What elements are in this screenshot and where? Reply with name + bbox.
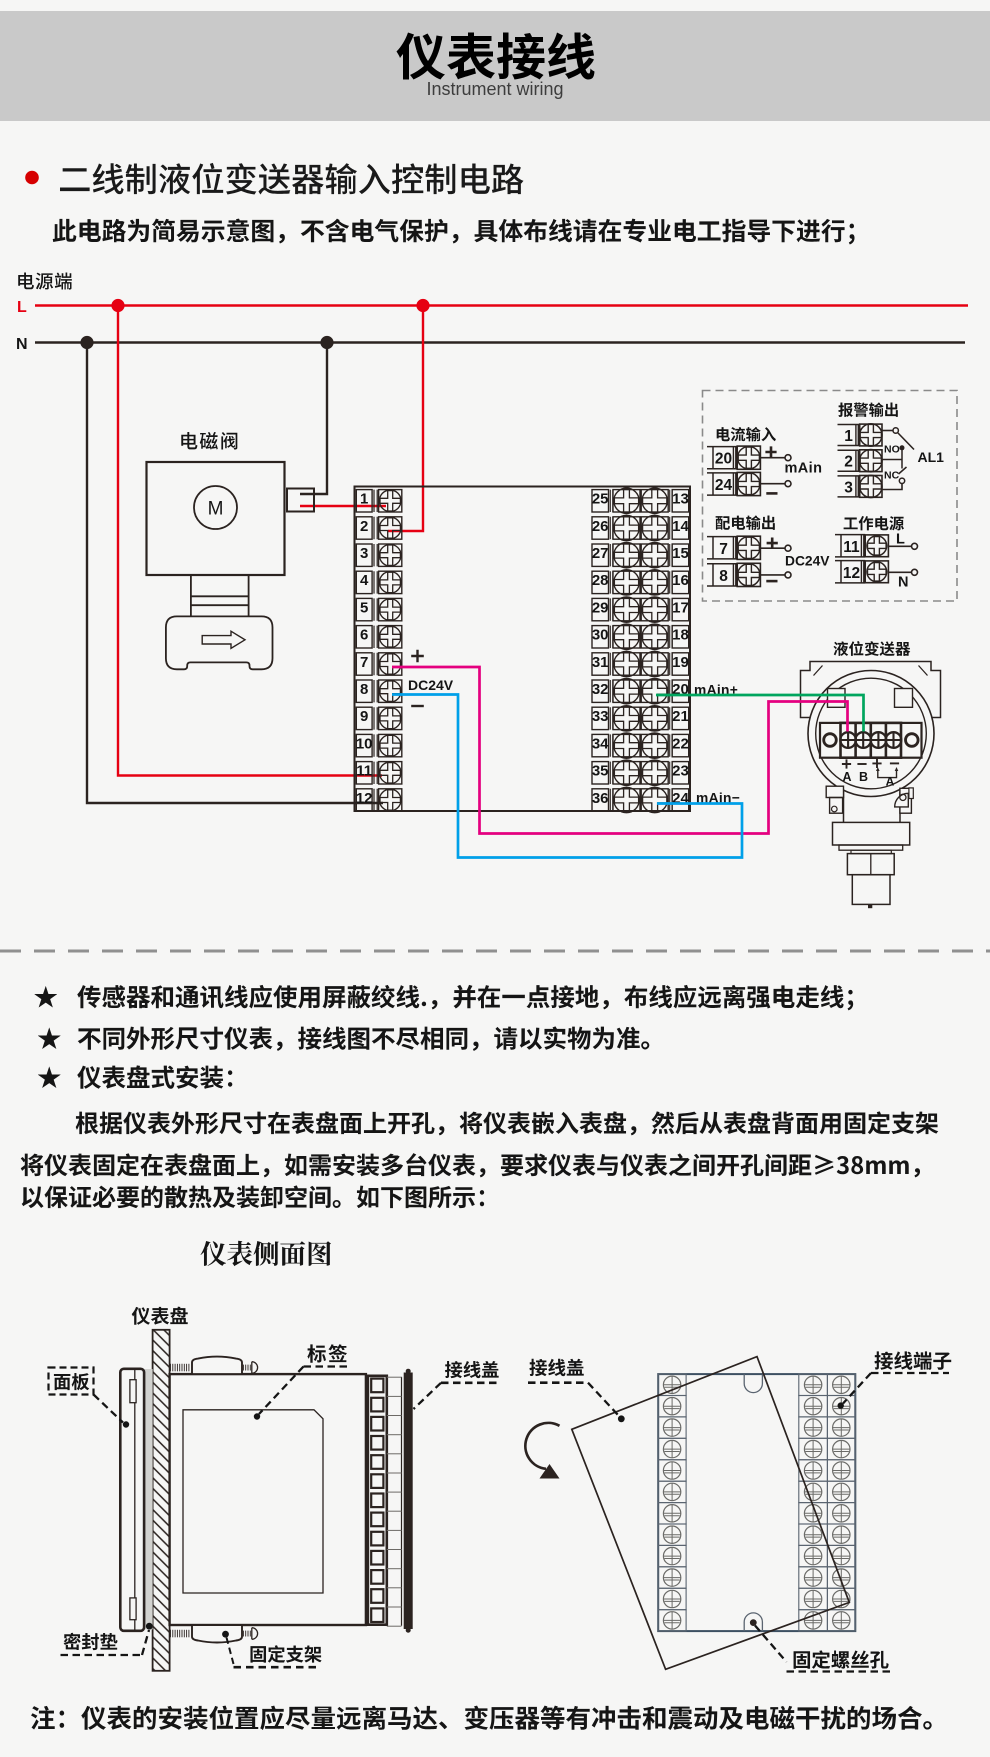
svg-text:18: 18 <box>672 627 689 644</box>
svg-text:35: 35 <box>592 763 609 780</box>
svg-text:AL1: AL1 <box>918 449 945 465</box>
svg-text:L: L <box>896 532 905 548</box>
svg-text:32: 32 <box>592 681 609 698</box>
svg-text:20: 20 <box>715 451 732 468</box>
svg-text:30: 30 <box>592 627 609 644</box>
svg-text:A: A <box>886 775 895 789</box>
svg-text:7: 7 <box>719 541 728 558</box>
svg-text:A: A <box>842 770 851 784</box>
svg-text:NO: NO <box>884 444 900 456</box>
svg-text:M: M <box>208 499 224 520</box>
svg-text:2: 2 <box>844 454 853 471</box>
svg-text:B: B <box>859 770 868 784</box>
svg-text:34: 34 <box>592 735 609 752</box>
svg-text:9: 9 <box>360 708 368 725</box>
svg-text:8: 8 <box>360 681 368 698</box>
svg-text:N: N <box>898 575 908 591</box>
svg-text:3: 3 <box>360 545 368 562</box>
svg-text:26: 26 <box>592 518 609 535</box>
svg-text:NC: NC <box>884 470 900 482</box>
svg-text:12: 12 <box>843 565 860 582</box>
svg-text:33: 33 <box>592 708 609 725</box>
svg-text:12: 12 <box>356 790 373 807</box>
svg-text:29: 29 <box>592 599 609 616</box>
svg-text:11: 11 <box>356 763 372 780</box>
svg-text:23: 23 <box>672 763 689 780</box>
svg-text:25: 25 <box>592 491 609 508</box>
svg-text:24: 24 <box>715 477 733 494</box>
svg-text:Instrument wiring: Instrument wiring <box>426 79 563 99</box>
svg-text:28: 28 <box>592 572 609 589</box>
svg-text:21: 21 <box>672 708 689 725</box>
svg-text:17: 17 <box>672 599 689 616</box>
svg-text:36: 36 <box>592 790 609 807</box>
svg-text:8: 8 <box>719 568 728 585</box>
svg-text:N: N <box>16 336 28 353</box>
svg-text:31: 31 <box>592 654 609 671</box>
svg-text:22: 22 <box>672 735 689 752</box>
svg-text:5: 5 <box>360 599 368 616</box>
svg-text:mAin: mAin <box>785 461 823 477</box>
svg-text:15: 15 <box>672 545 689 562</box>
svg-text:7: 7 <box>360 654 368 671</box>
svg-text:L: L <box>17 299 27 316</box>
svg-text:2: 2 <box>360 518 368 535</box>
svg-text:27: 27 <box>592 545 609 562</box>
svg-text:11: 11 <box>843 539 860 556</box>
svg-text:4: 4 <box>360 572 369 589</box>
svg-text:1: 1 <box>844 428 853 445</box>
svg-text:14: 14 <box>672 518 689 535</box>
svg-text:13: 13 <box>672 491 689 508</box>
svg-text:6: 6 <box>360 627 368 644</box>
svg-text:3: 3 <box>844 479 853 496</box>
svg-text:10: 10 <box>356 735 373 752</box>
svg-text:19: 19 <box>672 654 689 671</box>
svg-text:DC24V: DC24V <box>785 554 830 569</box>
svg-text:DC24V: DC24V <box>408 677 454 693</box>
svg-text:1: 1 <box>360 491 368 508</box>
svg-text:16: 16 <box>672 572 689 589</box>
